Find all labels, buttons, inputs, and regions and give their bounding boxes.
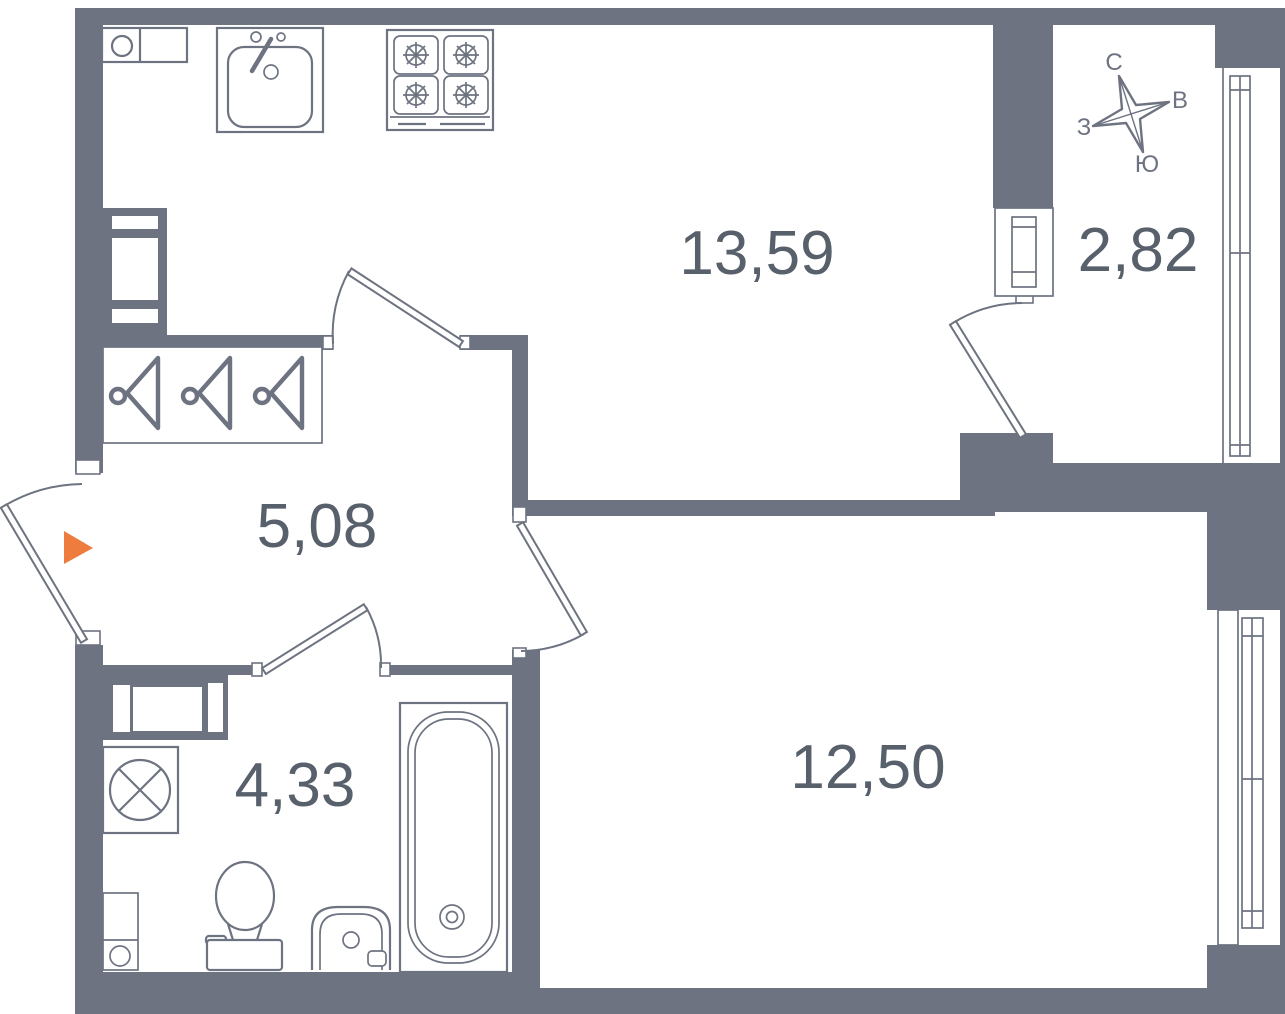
wall-left-upper <box>75 8 103 473</box>
bathroom-door <box>262 604 381 674</box>
wall-balcony-bottom <box>990 463 1280 512</box>
stove-icon <box>387 30 493 130</box>
room-label-balcony: 2,82 <box>1078 216 1199 285</box>
entrance-door <box>1 484 87 643</box>
wall-top-right-block <box>1215 25 1285 68</box>
kitchen-door-jamb-left <box>323 336 333 349</box>
wall-bathroom-top-left <box>103 665 262 675</box>
balcony-window-unit <box>995 208 1053 296</box>
wall-hall-room-lower <box>512 650 540 990</box>
duct-bathroom-slot <box>208 683 223 732</box>
bathtub-icon <box>400 703 507 972</box>
duct-openings <box>112 216 223 732</box>
wardrobe <box>103 347 322 443</box>
compass-north-label: С <box>1105 49 1122 76</box>
room-window <box>1207 610 1280 945</box>
bathroom-sink-icon <box>312 907 390 970</box>
room-label-room: 12,50 <box>790 733 945 802</box>
room-label-hallway: 5,08 <box>257 492 378 561</box>
compass-south-label: Ю <box>1135 151 1159 178</box>
room-door-jamb-bottom <box>513 648 526 658</box>
compass-east-label: В <box>1172 87 1188 114</box>
balcony-door <box>950 303 1026 438</box>
kitchen-door <box>333 268 463 346</box>
duct-kitchen-slot <box>112 238 158 300</box>
kitchen-cabinet <box>102 28 187 62</box>
wall-kitchen-balcony <box>993 25 1053 208</box>
washing-machine-icon <box>103 747 178 833</box>
room-label-kitchen-living: 13,59 <box>679 219 834 288</box>
wall-hall-room-upper <box>512 335 528 516</box>
wall-bottom-room <box>540 988 1285 1014</box>
kitchen-sink-icon <box>217 28 323 132</box>
area-labels: 13,59 2,82 5,08 4,33 12,50 <box>235 216 1199 820</box>
bathroom-door-jamb-left <box>252 663 262 676</box>
toilet-icon <box>206 862 282 970</box>
kitchen-fixtures <box>102 28 493 132</box>
entrance-jamb-top <box>76 460 100 474</box>
wall-left-lower <box>75 645 103 1014</box>
floor-plan: С В З Ю 13,59 2,82 5,08 4,33 12,50 <box>0 0 1285 1014</box>
bathroom-cabinet <box>103 893 138 970</box>
balcony-window <box>1218 68 1280 463</box>
duct-bathroom-slot <box>113 685 130 732</box>
compass-west-label: З <box>1077 114 1092 141</box>
wall-top <box>75 8 1285 25</box>
wall-corner-bottom-right <box>1207 945 1285 1014</box>
wall-balcony-door-jamb <box>993 433 1053 463</box>
bathroom-fixtures <box>103 703 507 972</box>
wall-bottom-bathroom <box>75 972 540 1014</box>
compass-rose: С В З Ю <box>1077 49 1188 178</box>
room-label-bathroom: 4,33 <box>235 751 356 820</box>
wall-kitchen-room-divider <box>515 500 995 516</box>
duct-kitchen-slot <box>112 309 158 323</box>
entrance-arrow-icon <box>64 531 93 564</box>
duct-kitchen-slot <box>112 216 158 229</box>
room-door <box>517 522 587 651</box>
wall-right-edge <box>1280 68 1285 945</box>
wall-balcony-corner <box>1207 512 1280 610</box>
wall-kitchen-stub <box>960 433 1000 512</box>
wall-bathroom-top-right <box>380 665 512 675</box>
duct-bathroom-slot <box>133 687 202 731</box>
room-door-jamb-top <box>513 507 526 522</box>
